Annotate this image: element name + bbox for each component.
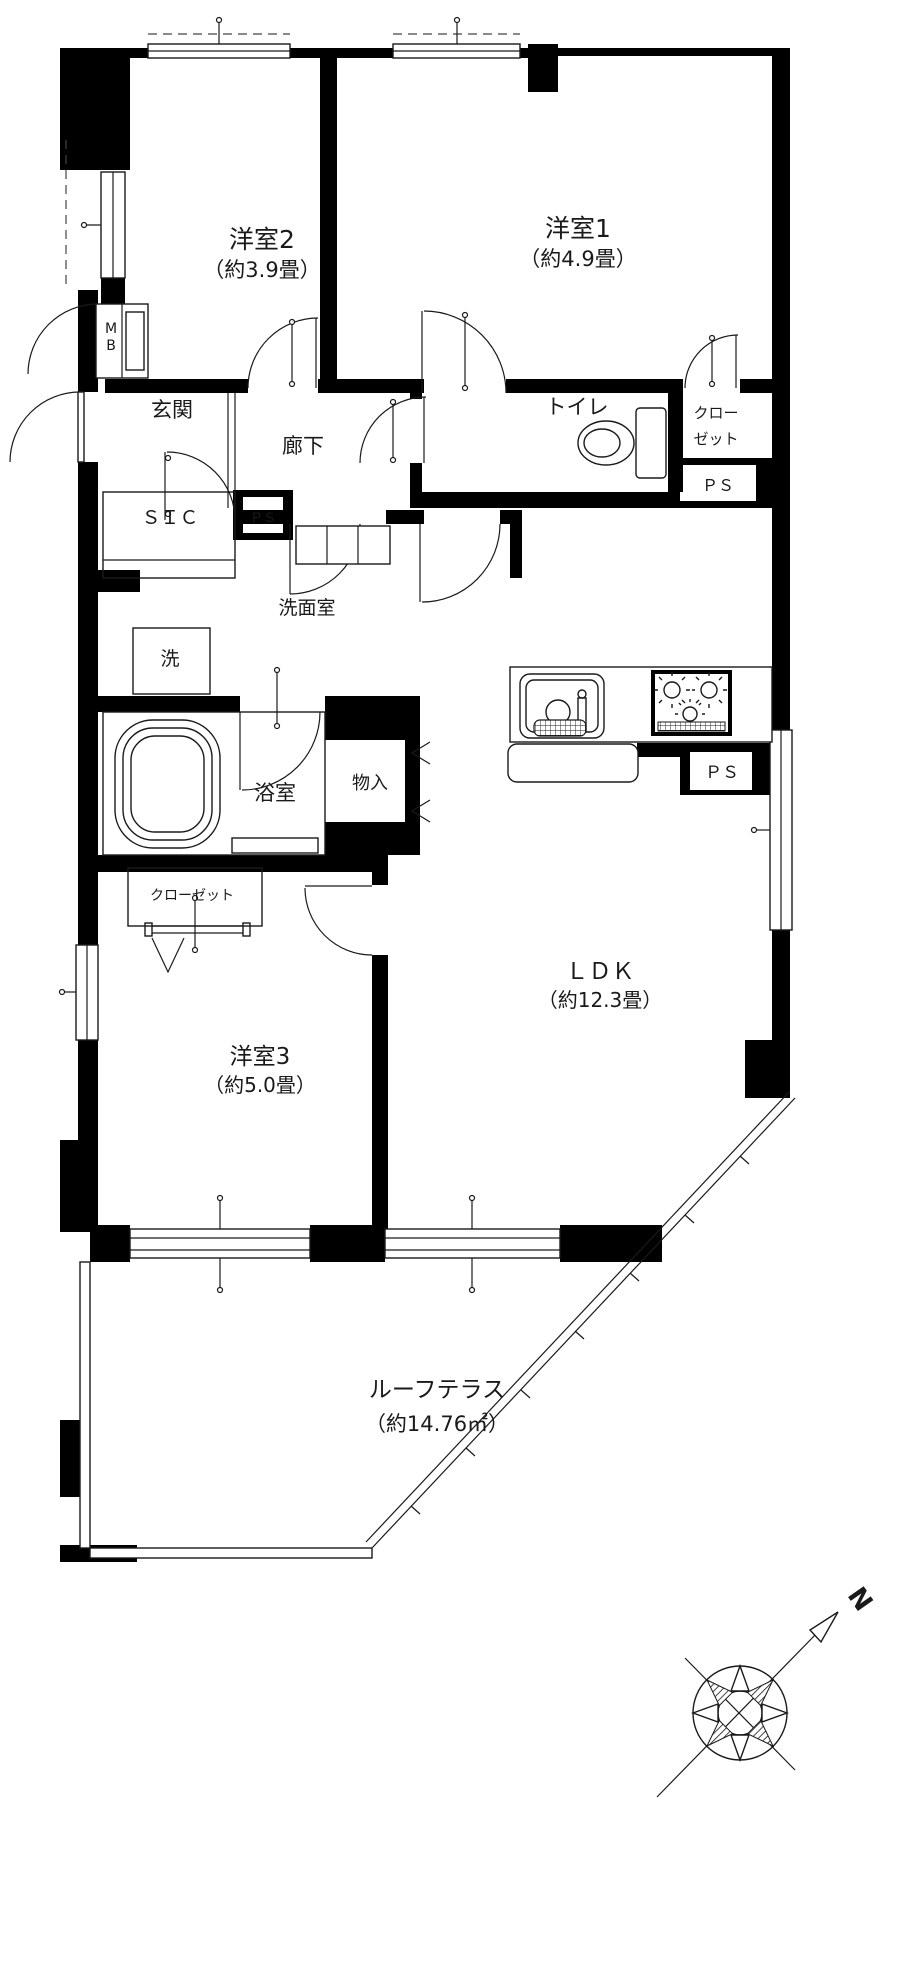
label-bedroom1-name: 洋室1	[545, 214, 611, 243]
label-closet-right-1: クロー	[693, 404, 738, 422]
label-senmenshitsu: 洗面室	[278, 597, 335, 619]
label-terrace-name: ルーフテラス	[369, 1377, 505, 1403]
compass-rose-icon: N	[657, 1582, 878, 1797]
ldk-door	[420, 524, 500, 602]
label-genkan: 玄関	[151, 398, 193, 422]
window-bedroom3-bottom	[130, 1196, 310, 1293]
label-closet-left: クローゼット	[150, 888, 234, 904]
gas-stove	[653, 672, 730, 734]
label-laundry: 洗	[160, 648, 179, 670]
terrace-hatch-ticks	[411, 1156, 749, 1514]
label-bedroom2-size: （約3.9畳）	[203, 258, 320, 282]
label-meter-box-m: M	[105, 321, 117, 337]
window-bedroom3-left	[60, 945, 99, 1040]
label-bedroom3-size: （約5.0畳）	[204, 1073, 316, 1097]
kitchen-sink	[520, 674, 604, 738]
label-yokushitsu: 浴室	[254, 781, 296, 805]
north-arrowhead-icon	[810, 1612, 838, 1642]
bedroom3-door	[305, 886, 372, 955]
label-bedroom1-size: （約4.9畳）	[519, 247, 636, 271]
label-ps-kitchen: ＰＳ	[705, 763, 739, 783]
terrace-outline	[80, 1092, 795, 1558]
label-toilet: トイレ	[546, 395, 609, 419]
sic-shelf	[103, 492, 235, 578]
label-terrace-size: （約14.76㎡）	[365, 1412, 509, 1436]
window-bedroom1-top	[393, 18, 520, 59]
entrance-door	[10, 392, 84, 462]
floor-plan-drawing: N 洋室2 （約3.9畳） 洋室1 （約4.9畳） 玄関 廊下 トイレ クロー …	[0, 0, 897, 1966]
label-ps-entrance: ＰＳ	[250, 511, 276, 526]
label-monoire: 物入	[352, 773, 388, 794]
closet-left-folding-door	[145, 896, 250, 973]
label-ps-closet: ＰＳ	[702, 476, 734, 495]
label-bedroom2-name: 洋室2	[229, 225, 295, 254]
label-sic: ＳＩＣ	[141, 507, 198, 529]
window-bedroom2-top	[148, 18, 290, 59]
closet-right-door	[685, 335, 738, 388]
window-ldk-bottom	[385, 1196, 560, 1293]
vanity-counter	[296, 526, 390, 564]
label-bedroom3-name: 洋室3	[230, 1044, 291, 1070]
toilet-door	[360, 397, 426, 463]
bathtub	[115, 720, 220, 848]
bedroom2-door	[248, 318, 318, 388]
label-rouka: 廊下	[282, 434, 324, 458]
label-meter-box-b: B	[106, 338, 116, 354]
label-ldk-name: ＬＤＫ	[566, 959, 635, 985]
bedroom1-door	[422, 311, 506, 393]
meter-box	[96, 304, 148, 378]
label-closet-right-2: ゼット	[693, 430, 738, 448]
floor-plan-canvas: N 洋室2 （約3.9畳） 洋室1 （約4.9畳） 玄関 廊下 トイレ クロー …	[0, 0, 897, 1966]
label-ldk-size: （約12.3畳）	[538, 988, 663, 1012]
compass-north-label: N	[841, 1582, 878, 1617]
bath-door	[240, 668, 320, 791]
